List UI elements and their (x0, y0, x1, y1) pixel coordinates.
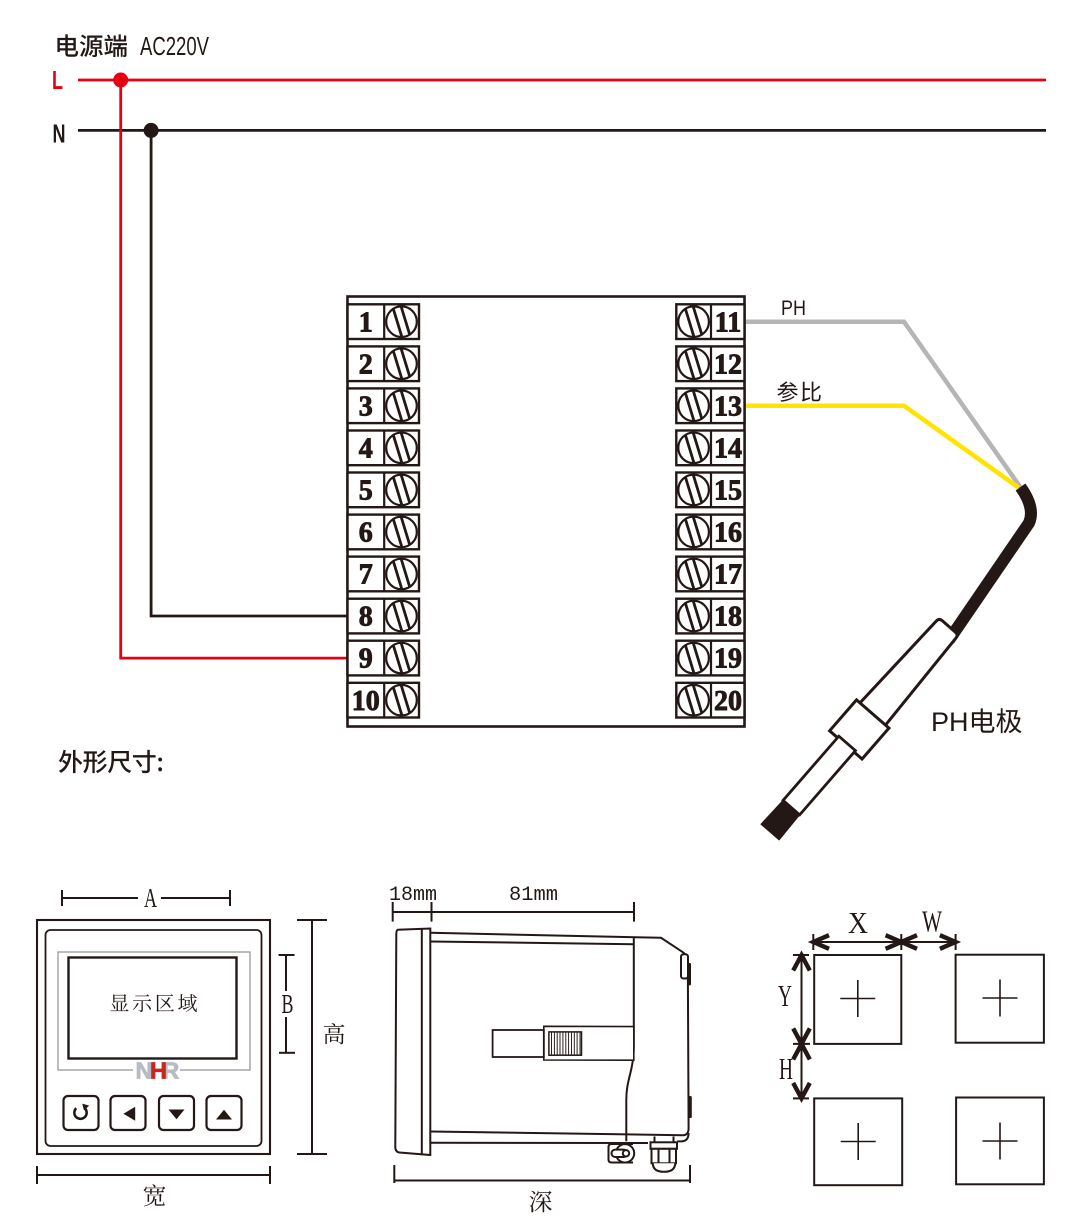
svg-text:14: 14 (714, 433, 742, 464)
svg-text:AC220V: AC220V (140, 31, 209, 61)
svg-text:7: 7 (359, 560, 373, 591)
svg-text:10: 10 (352, 686, 380, 717)
svg-text:12: 12 (714, 349, 742, 380)
svg-text:A: A (144, 883, 157, 913)
svg-text:19: 19 (714, 644, 742, 675)
svg-text:N: N (53, 118, 66, 148)
svg-text:4: 4 (359, 433, 373, 464)
svg-text:PH: PH (931, 707, 969, 737)
svg-text:15: 15 (714, 476, 742, 507)
svg-text:H: H (779, 1051, 793, 1086)
svg-text:8: 8 (359, 602, 373, 633)
svg-text:5: 5 (359, 476, 373, 507)
svg-text:13: 13 (714, 391, 742, 422)
svg-text:2: 2 (359, 349, 373, 380)
svg-text:16: 16 (714, 518, 742, 549)
svg-text:W: W (922, 904, 943, 939)
svg-text:17: 17 (714, 560, 742, 591)
svg-text:PH: PH (781, 297, 806, 320)
svg-text:H: H (150, 1058, 167, 1084)
svg-text:B: B (282, 989, 294, 1019)
svg-text:18: 18 (714, 602, 742, 633)
svg-text:L: L (52, 65, 63, 95)
svg-text:20: 20 (714, 686, 742, 717)
svg-text:81mm: 81mm (509, 884, 558, 907)
svg-text:Y: Y (778, 978, 792, 1013)
svg-text:9: 9 (359, 644, 373, 675)
svg-text:6: 6 (359, 518, 373, 549)
svg-text:3: 3 (359, 391, 373, 422)
svg-text:X: X (848, 905, 868, 940)
svg-text:18mm: 18mm (389, 884, 437, 907)
svg-text:11: 11 (715, 307, 741, 338)
svg-text:1: 1 (359, 307, 373, 338)
